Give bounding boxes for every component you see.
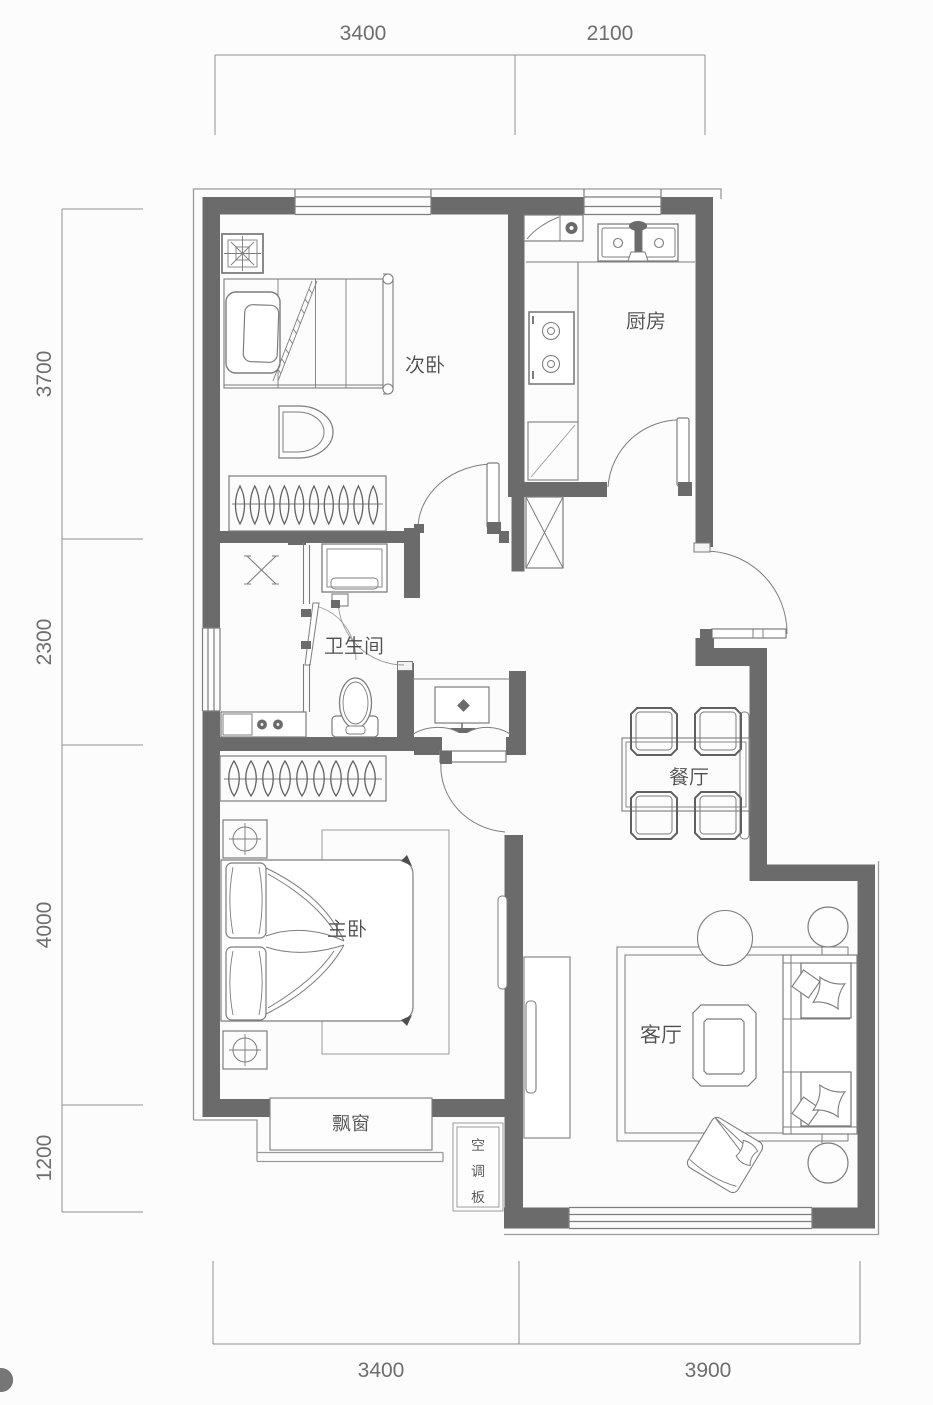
svg-text:2100: 2100 bbox=[587, 22, 634, 45]
svg-text:3400: 3400 bbox=[340, 22, 387, 45]
svg-text:3400: 3400 bbox=[358, 1359, 405, 1382]
svg-text:1200: 1200 bbox=[33, 1135, 56, 1182]
svg-text:3700: 3700 bbox=[33, 351, 56, 398]
svg-text:4000: 4000 bbox=[33, 902, 56, 949]
svg-text:3900: 3900 bbox=[685, 1359, 732, 1382]
svg-text:2300: 2300 bbox=[33, 619, 56, 666]
